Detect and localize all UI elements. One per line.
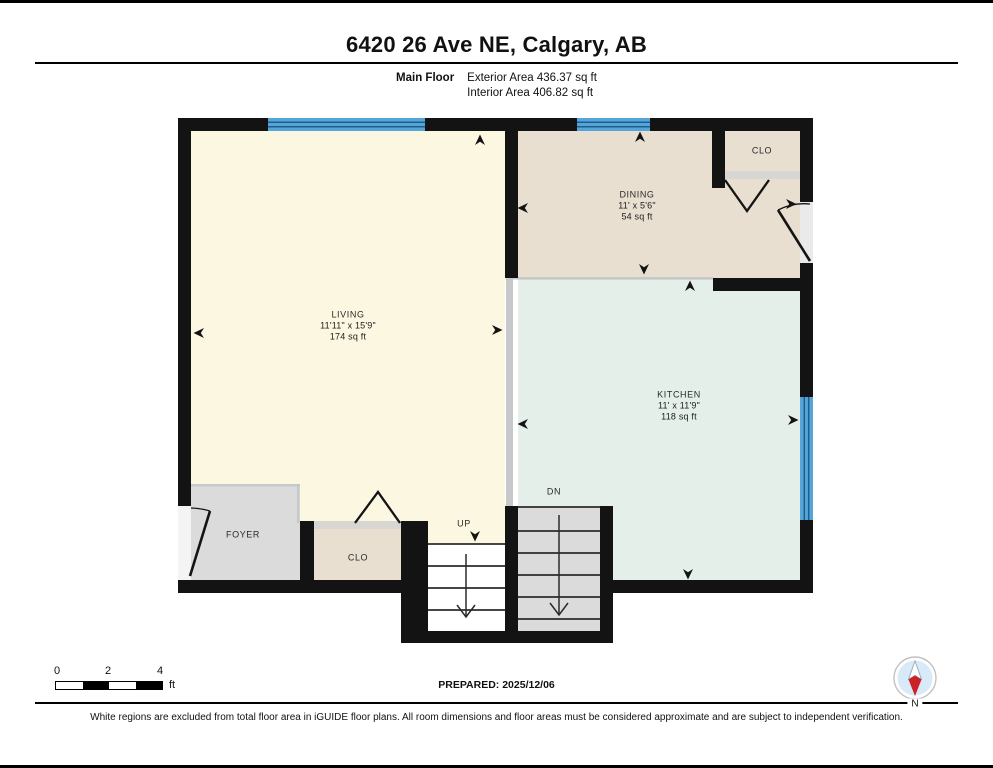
kitchen-label: KITCHEN 11' x 11'9" 118 sq ft: [657, 390, 701, 423]
wall-closet-main-right: [401, 521, 428, 643]
compass-icon: [894, 657, 936, 699]
living-label: LIVING 11'11" x 15'9" 174 sq ft: [320, 310, 376, 343]
wall-stairs-bottom: [401, 631, 613, 643]
window-living-icon: [268, 118, 425, 131]
wall-stairs-right: [600, 506, 613, 643]
scale-tick: 0: [54, 665, 60, 677]
wall-right: [800, 118, 813, 593]
closet-main-label: CLO: [348, 553, 368, 564]
wall-bottom-right: [613, 580, 813, 593]
prepared-date: PREPARED: 2025/12/06: [0, 679, 993, 691]
wall-dining-kitchen: [713, 278, 800, 291]
wall-stairs-middle: [505, 506, 518, 643]
window-kitchen-icon: [800, 397, 813, 520]
foyer-label: FOYER: [226, 530, 260, 541]
floor-plan-drawing: [0, 3, 993, 768]
dining-label: DINING 11' x 5'6" 54 sq ft: [618, 190, 656, 223]
wall-closet-dining-stub: [712, 131, 725, 188]
disclaimer-text: White regions are excluded from total fl…: [0, 712, 993, 723]
scale-tick: 4: [157, 665, 163, 677]
floor-plan-page: 6420 26 Ave NE, Calgary, AB Main Floor E…: [0, 0, 993, 768]
compass-north-label: N: [907, 699, 922, 710]
wall-closet-main-left: [300, 521, 314, 593]
window-dining-icon: [577, 118, 650, 131]
stairs-down-label: DN: [547, 487, 561, 498]
wall-bottom-left: [178, 580, 415, 593]
wall-living-dining: [505, 131, 518, 278]
scale-tick: 2: [105, 665, 111, 677]
wall-left: [178, 118, 191, 506]
stairs-up-label: UP: [457, 519, 471, 530]
closet-dining-label: CLO: [752, 146, 772, 157]
